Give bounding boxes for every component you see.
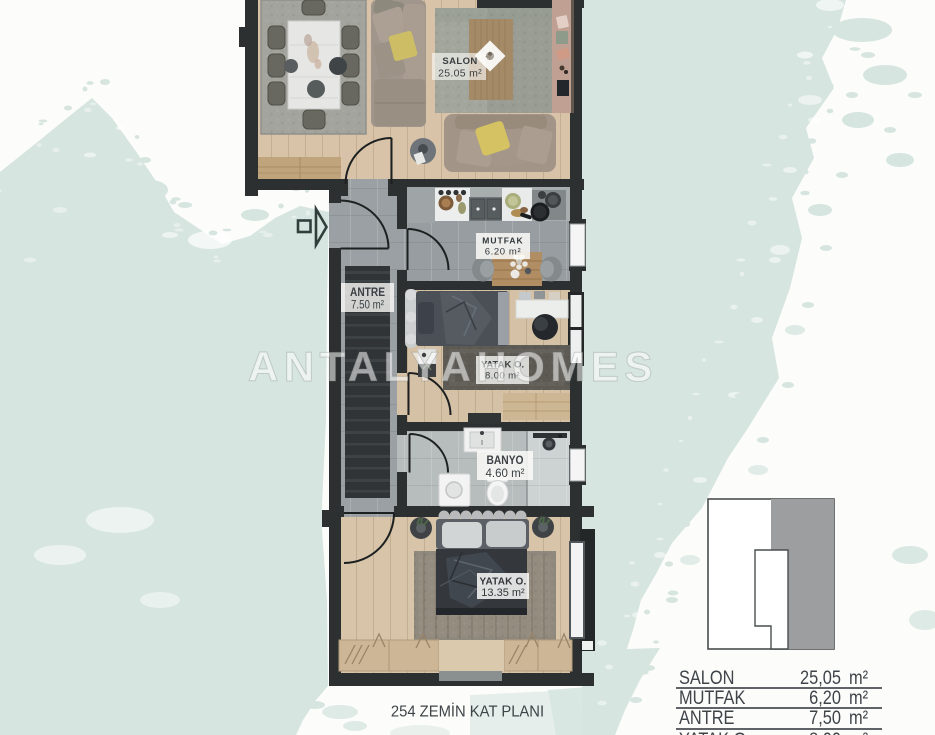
svg-text:MUTFAK: MUTFAK <box>679 687 745 709</box>
svg-text:7.50 m²: 7.50 m² <box>351 298 384 312</box>
svg-text:m²: m² <box>849 707 868 729</box>
svg-text:7,50: 7,50 <box>809 707 841 729</box>
svg-text:4.60 m²: 4.60 m² <box>486 466 525 480</box>
svg-text:SALON: SALON <box>679 667 735 689</box>
svg-text:m²: m² <box>849 667 868 689</box>
svg-text:25.05 m²: 25.05 m² <box>438 68 482 80</box>
svg-text:254 ZEMİN KAT PLANI: 254 ZEMİN KAT PLANI <box>391 702 544 721</box>
svg-text:YATAK O.: YATAK O. <box>480 577 527 588</box>
svg-text:6.20 m²: 6.20 m² <box>485 247 521 258</box>
svg-text:6,20: 6,20 <box>809 687 841 709</box>
svg-text:ANTALYAHOMES: ANTALYAHOMES <box>248 343 658 390</box>
svg-text:BANYO: BANYO <box>487 453 524 467</box>
svg-text:ANTRE: ANTRE <box>679 707 735 729</box>
svg-text:25,05: 25,05 <box>800 667 841 689</box>
svg-text:SALON: SALON <box>442 56 477 67</box>
svg-text:m²: m² <box>849 687 868 709</box>
svg-text:13.35 m²: 13.35 m² <box>481 587 525 599</box>
svg-text:MUTFAK: MUTFAK <box>482 236 523 246</box>
